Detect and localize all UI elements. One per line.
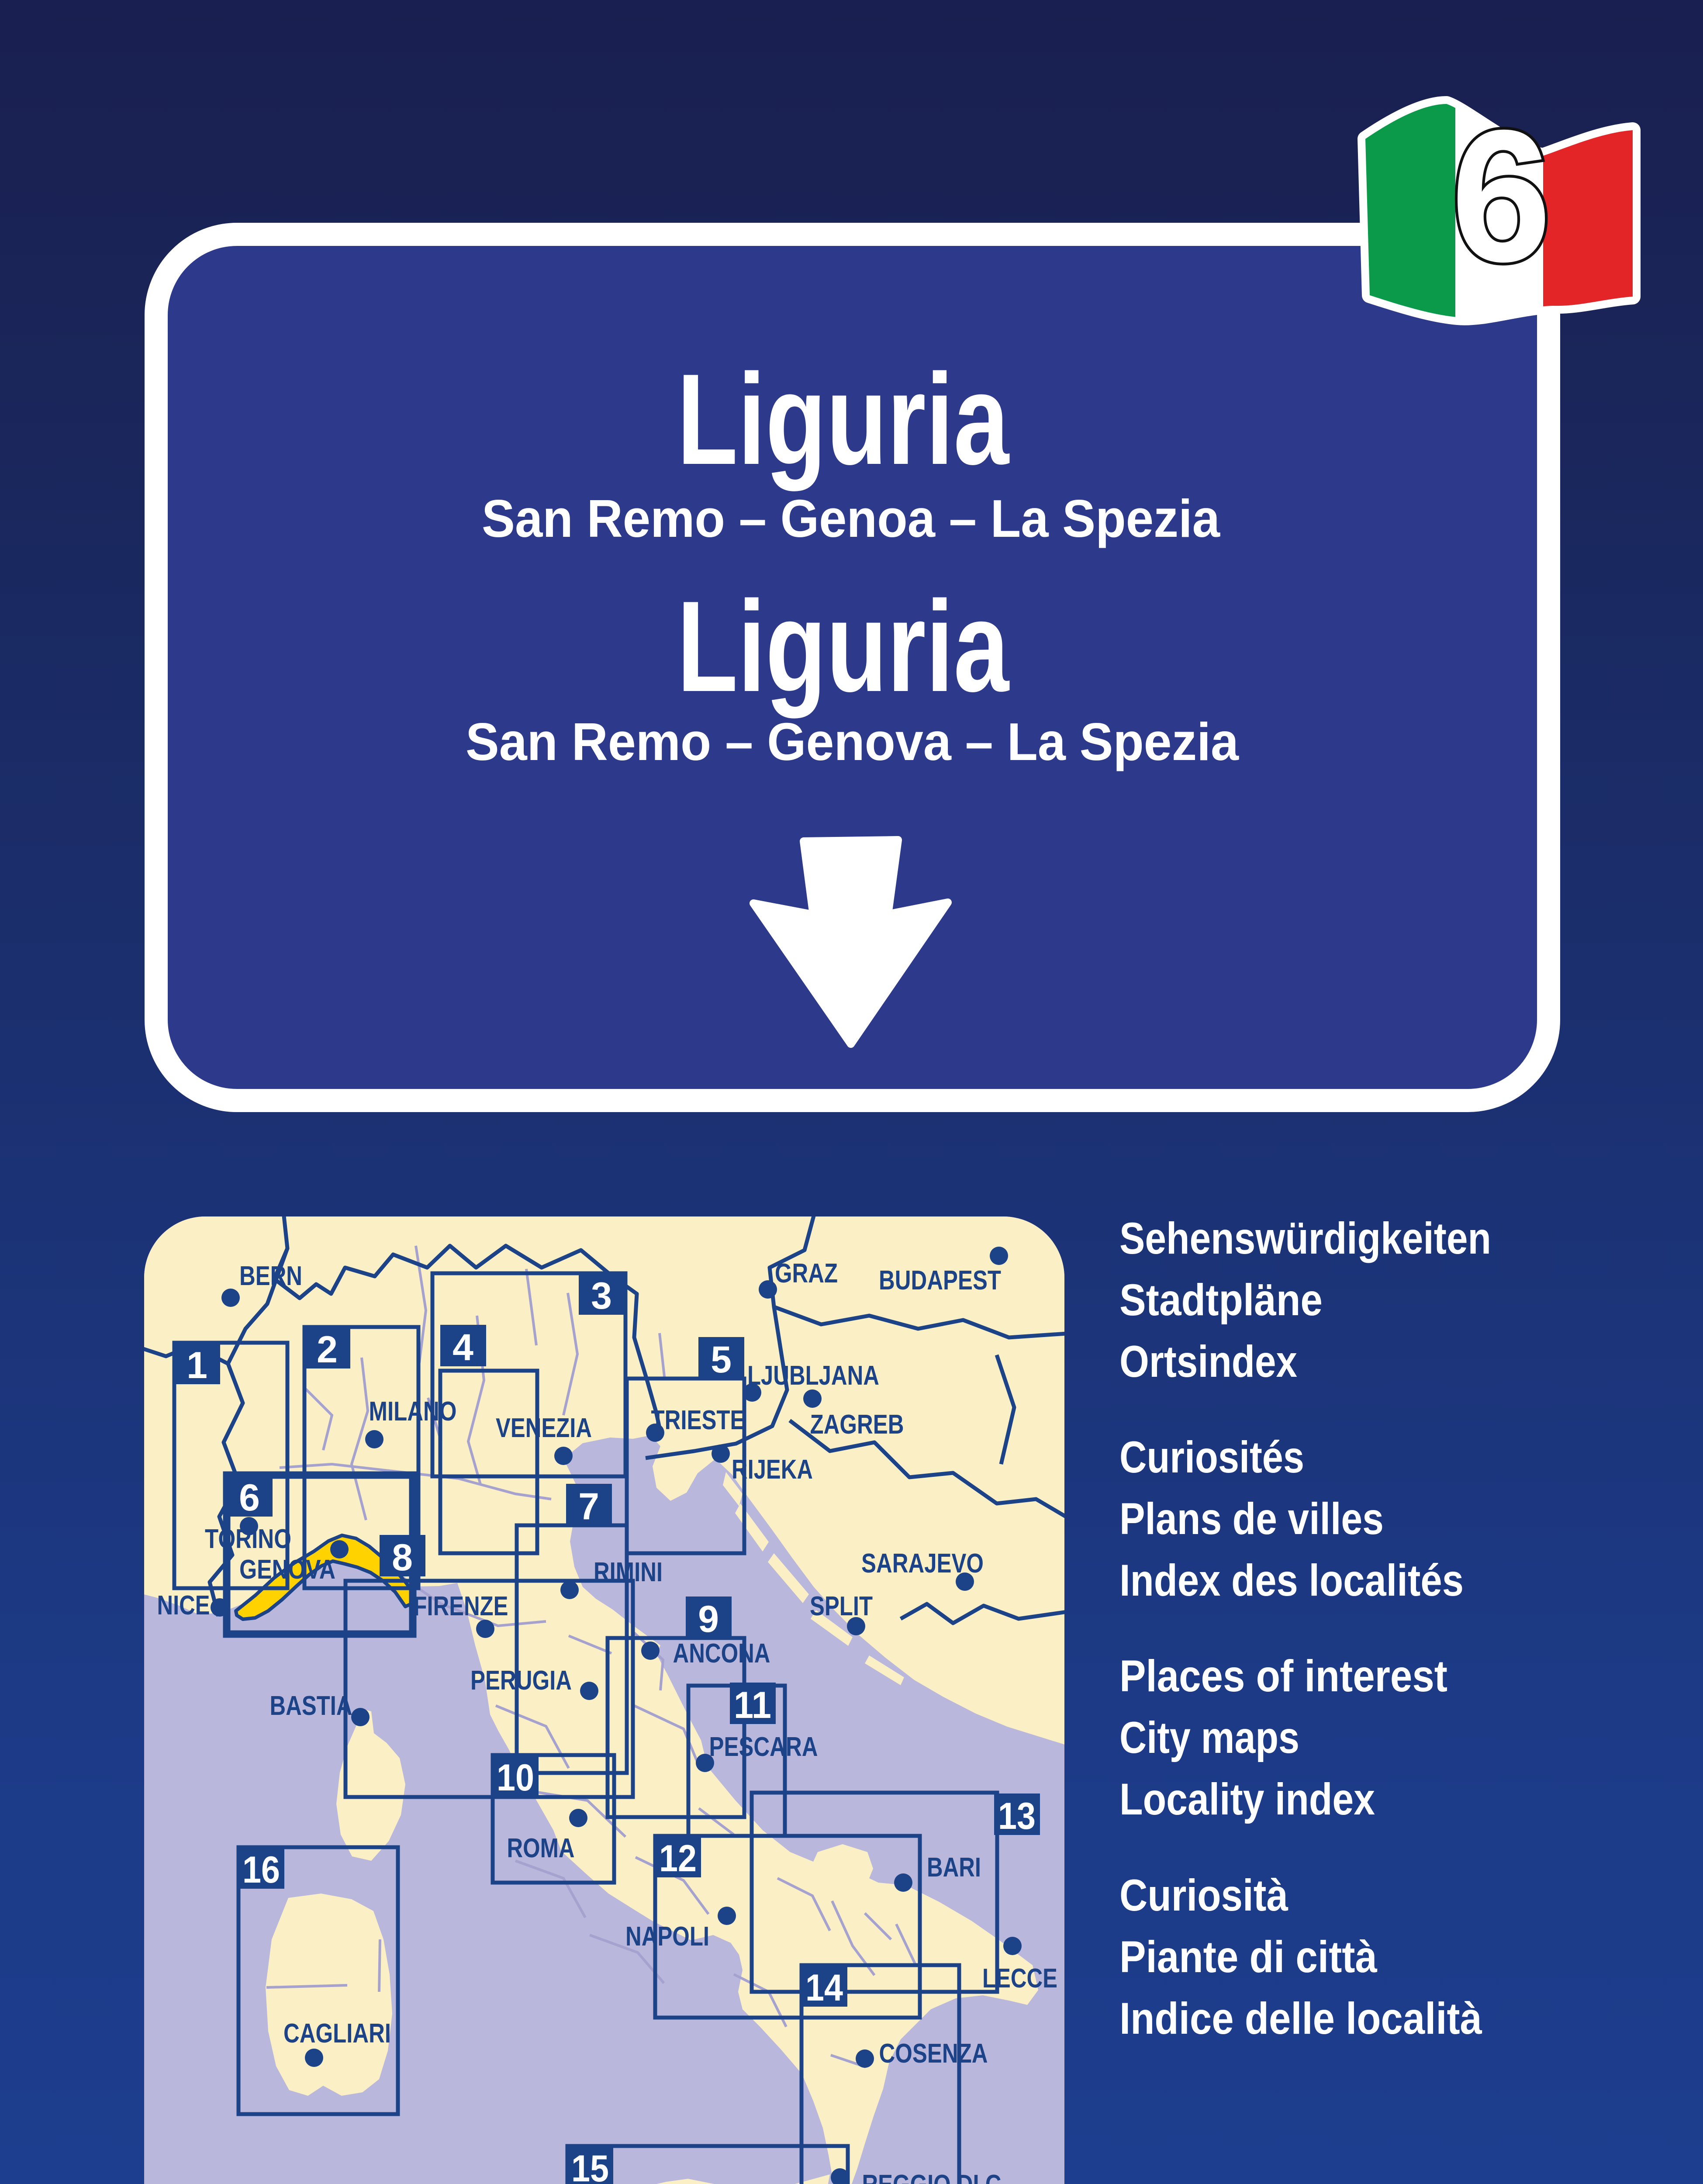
svg-text:City maps: City maps [1119, 1713, 1299, 1762]
svg-text:Curiosità: Curiosità [1119, 1870, 1288, 1920]
svg-text:6: 6 [239, 1477, 260, 1519]
svg-text:GENOVA: GENOVA [239, 1555, 335, 1585]
svg-text:San Remo – Genoa – La Spezia: San Remo – Genoa – La Spezia [482, 489, 1220, 548]
svg-text:BERN: BERN [239, 1261, 302, 1291]
svg-text:VENEZIA: VENEZIA [496, 1413, 592, 1443]
svg-text:Locality index: Locality index [1119, 1774, 1375, 1824]
svg-text:San Remo – Genova – La Spezia: San Remo – Genova – La Spezia [466, 712, 1239, 771]
svg-text:16: 16 [242, 1849, 280, 1891]
svg-text:PESCARA: PESCARA [709, 1732, 818, 1762]
svg-text:SPLIT: SPLIT [810, 1591, 873, 1621]
svg-text:Stadtpläne: Stadtpläne [1119, 1275, 1323, 1325]
svg-text:Index des localités: Index des localités [1119, 1555, 1464, 1605]
svg-text:Ortsindex: Ortsindex [1119, 1337, 1297, 1386]
svg-text:5: 5 [711, 1339, 732, 1381]
svg-text:Plans de villes: Plans de villes [1119, 1494, 1384, 1544]
svg-text:RIJEKA: RIJEKA [732, 1455, 813, 1485]
svg-text:Indice delle località: Indice delle località [1119, 1994, 1482, 2043]
svg-text:14: 14 [805, 1967, 843, 2009]
svg-text:8: 8 [392, 1537, 413, 1579]
svg-text:9: 9 [698, 1598, 719, 1640]
svg-text:1: 1 [187, 1344, 207, 1386]
svg-text:Curiosités: Curiosités [1119, 1432, 1304, 1482]
svg-text:LECCE: LECCE [982, 1963, 1057, 1994]
svg-text:ANCONA: ANCONA [673, 1638, 770, 1669]
svg-text:NICE: NICE [157, 1590, 210, 1621]
svg-text:2: 2 [317, 1329, 338, 1371]
svg-text:COSENZA: COSENZA [879, 2039, 988, 2069]
svg-text:Piante di città: Piante di città [1119, 1932, 1377, 1982]
svg-text:REGGIO DI C.: REGGIO DI C. [862, 2170, 1008, 2184]
svg-text:MILANO: MILANO [369, 1396, 457, 1427]
svg-text:BASTIA: BASTIA [270, 1691, 352, 1721]
svg-text:CAGLIARI: CAGLIARI [283, 2018, 391, 2049]
svg-text:3: 3 [591, 1275, 612, 1317]
svg-text:11: 11 [734, 1684, 771, 1726]
svg-text:10: 10 [497, 1757, 534, 1799]
svg-text:BARI: BARI [927, 1852, 981, 1883]
svg-text:TRIESTE: TRIESTE [651, 1405, 745, 1435]
svg-text:Liguria: Liguria [677, 347, 1009, 492]
svg-text:GRAZ: GRAZ [775, 1258, 838, 1289]
svg-text:13: 13 [998, 1795, 1036, 1837]
svg-text:FIRENZE: FIRENZE [414, 1591, 508, 1621]
svg-text:Sehenswürdigkeiten: Sehenswürdigkeiten [1119, 1213, 1491, 1263]
svg-text:ZAGREB: ZAGREB [810, 1410, 904, 1440]
svg-text:12: 12 [659, 1838, 697, 1880]
svg-text:LJUBLJANA: LJUBLJANA [747, 1361, 879, 1391]
svg-text:ROMA: ROMA [507, 1833, 575, 1863]
svg-text:SARAJEVO: SARAJEVO [861, 1548, 984, 1579]
svg-text:6: 6 [1451, 91, 1551, 301]
svg-text:BUDAPEST: BUDAPEST [879, 1265, 1001, 1296]
svg-text:15: 15 [571, 2148, 609, 2184]
svg-text:7: 7 [578, 1486, 599, 1527]
svg-text:RIMINI: RIMINI [594, 1557, 663, 1587]
svg-text:Places of interest: Places of interest [1119, 1651, 1447, 1701]
svg-text:TORINO: TORINO [205, 1524, 291, 1554]
svg-text:PERUGIA: PERUGIA [470, 1666, 572, 1696]
svg-text:NAPOLI: NAPOLI [625, 1921, 709, 1952]
svg-text:4: 4 [453, 1327, 473, 1368]
svg-text:Liguria: Liguria [677, 574, 1009, 719]
